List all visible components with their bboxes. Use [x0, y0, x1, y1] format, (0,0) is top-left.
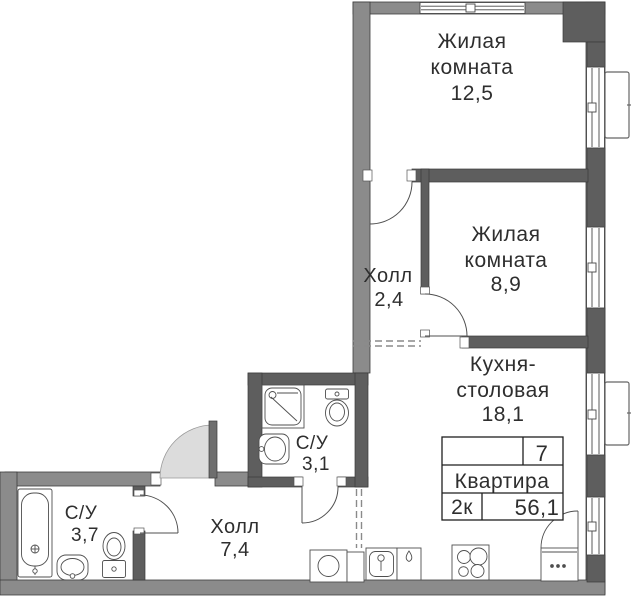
wall-bath-big-right-lower: [133, 531, 145, 580]
svg-text:столовая: столовая: [456, 379, 549, 402]
balcony-room1: [605, 72, 629, 138]
kitchen-sink-icon: [366, 548, 397, 580]
svg-text:комната: комната: [431, 56, 514, 79]
wall-right-seg2: [587, 148, 605, 227]
label-kitchen: Кухня- столовая 18,1: [456, 353, 549, 426]
floor-plan-canvas: 7 Квартира 2к 56,1 Жилая комната 12,5 Жи…: [0, 0, 632, 600]
info-rooms-type: 2к: [451, 496, 473, 519]
washing-machine-icon: [310, 550, 347, 582]
svg-text:комната: комната: [465, 249, 548, 272]
svg-text:8,9: 8,9: [491, 273, 522, 296]
toilet-icon-bath-big: [103, 533, 126, 578]
entrance-door-swing: [160, 425, 213, 478]
info-floor-number: 7: [536, 441, 549, 466]
svg-text:2,4: 2,4: [374, 289, 403, 311]
wall-room1-room2: [412, 169, 588, 182]
dishwasher-icon: [397, 548, 421, 580]
sink-icon-bath-big: [57, 555, 88, 580]
svg-text:18,1: 18,1: [482, 403, 525, 426]
balcony-kitchen: [605, 382, 629, 445]
wall-right-seg4: [587, 455, 605, 497]
wall-right-seg1: [587, 42, 605, 67]
door-jambs: [134, 170, 469, 534]
wall-left-upper-section: [353, 2, 370, 373]
wall-bath-small-left: [248, 373, 262, 487]
sink-icon-bath-small: [259, 434, 289, 464]
door-room2: [425, 294, 467, 336]
info-title: Квартира: [455, 470, 550, 493]
door-bath-small: [302, 487, 338, 523]
wall-room2-left: [421, 169, 429, 294]
floor-plan: 7 Квартира 2к 56,1 Жилая комната 12,5 Жи…: [0, 0, 632, 600]
door-room1: [370, 182, 412, 224]
wall-corner-block: [563, 2, 605, 42]
svg-text:С/У: С/У: [65, 503, 98, 524]
label-bath-small: С/У 3,1: [296, 433, 330, 475]
wall-left-outer: [0, 472, 17, 594]
shower-icon: [262, 385, 304, 428]
svg-text:Кухня-: Кухня-: [470, 353, 536, 376]
wall-right-seg5: [587, 555, 605, 582]
entrance-door: [160, 421, 217, 478]
wall-top-left-section: [5, 472, 160, 486]
fridge-icon: [541, 511, 578, 581]
svg-text:Холл: Холл: [210, 516, 259, 538]
window-kitchen-1: [587, 373, 605, 455]
svg-text:С/У: С/У: [296, 433, 329, 454]
window-kitchen-2: [587, 497, 605, 555]
label-room1: Жилая комната 12,5: [431, 30, 514, 105]
svg-text:Жилая: Жилая: [438, 30, 507, 53]
entrance-door-leaf: [209, 421, 217, 478]
svg-text:Холл: Холл: [363, 265, 412, 287]
wall-bath-small-right: [355, 373, 368, 487]
doors: [140, 182, 467, 533]
label-bath-big: С/У 3,7: [65, 503, 99, 546]
info-table: 7 Квартира 2к 56,1: [442, 437, 563, 520]
info-total-area: 56,1: [515, 495, 560, 520]
wall-right-seg3: [587, 308, 605, 373]
cabinet-icon: [347, 552, 364, 582]
balconies: [605, 72, 631, 445]
label-hall-upper: Холл 2,4: [363, 265, 412, 311]
svg-text:Жилая: Жилая: [472, 223, 541, 246]
stove-icon: [452, 545, 489, 580]
wall-bottom: [0, 580, 605, 595]
window-room2: [587, 227, 605, 308]
svg-text:7,4: 7,4: [220, 539, 249, 561]
svg-text:3,1: 3,1: [302, 454, 330, 475]
window-room1: [587, 67, 605, 148]
window-top: [420, 3, 525, 14]
bathtub-icon: [18, 489, 52, 577]
wall-kitchen-top: [462, 336, 588, 348]
door-bath-big: [140, 495, 178, 533]
label-hall-lower: Холл 7,4: [210, 516, 259, 561]
svg-text:12,5: 12,5: [451, 82, 494, 105]
wall-bath-small-top: [248, 373, 368, 385]
label-room2: Жилая комната 8,9: [465, 223, 548, 296]
toilet-icon-bath-small: [326, 389, 349, 426]
svg-text:3,7: 3,7: [71, 525, 99, 546]
